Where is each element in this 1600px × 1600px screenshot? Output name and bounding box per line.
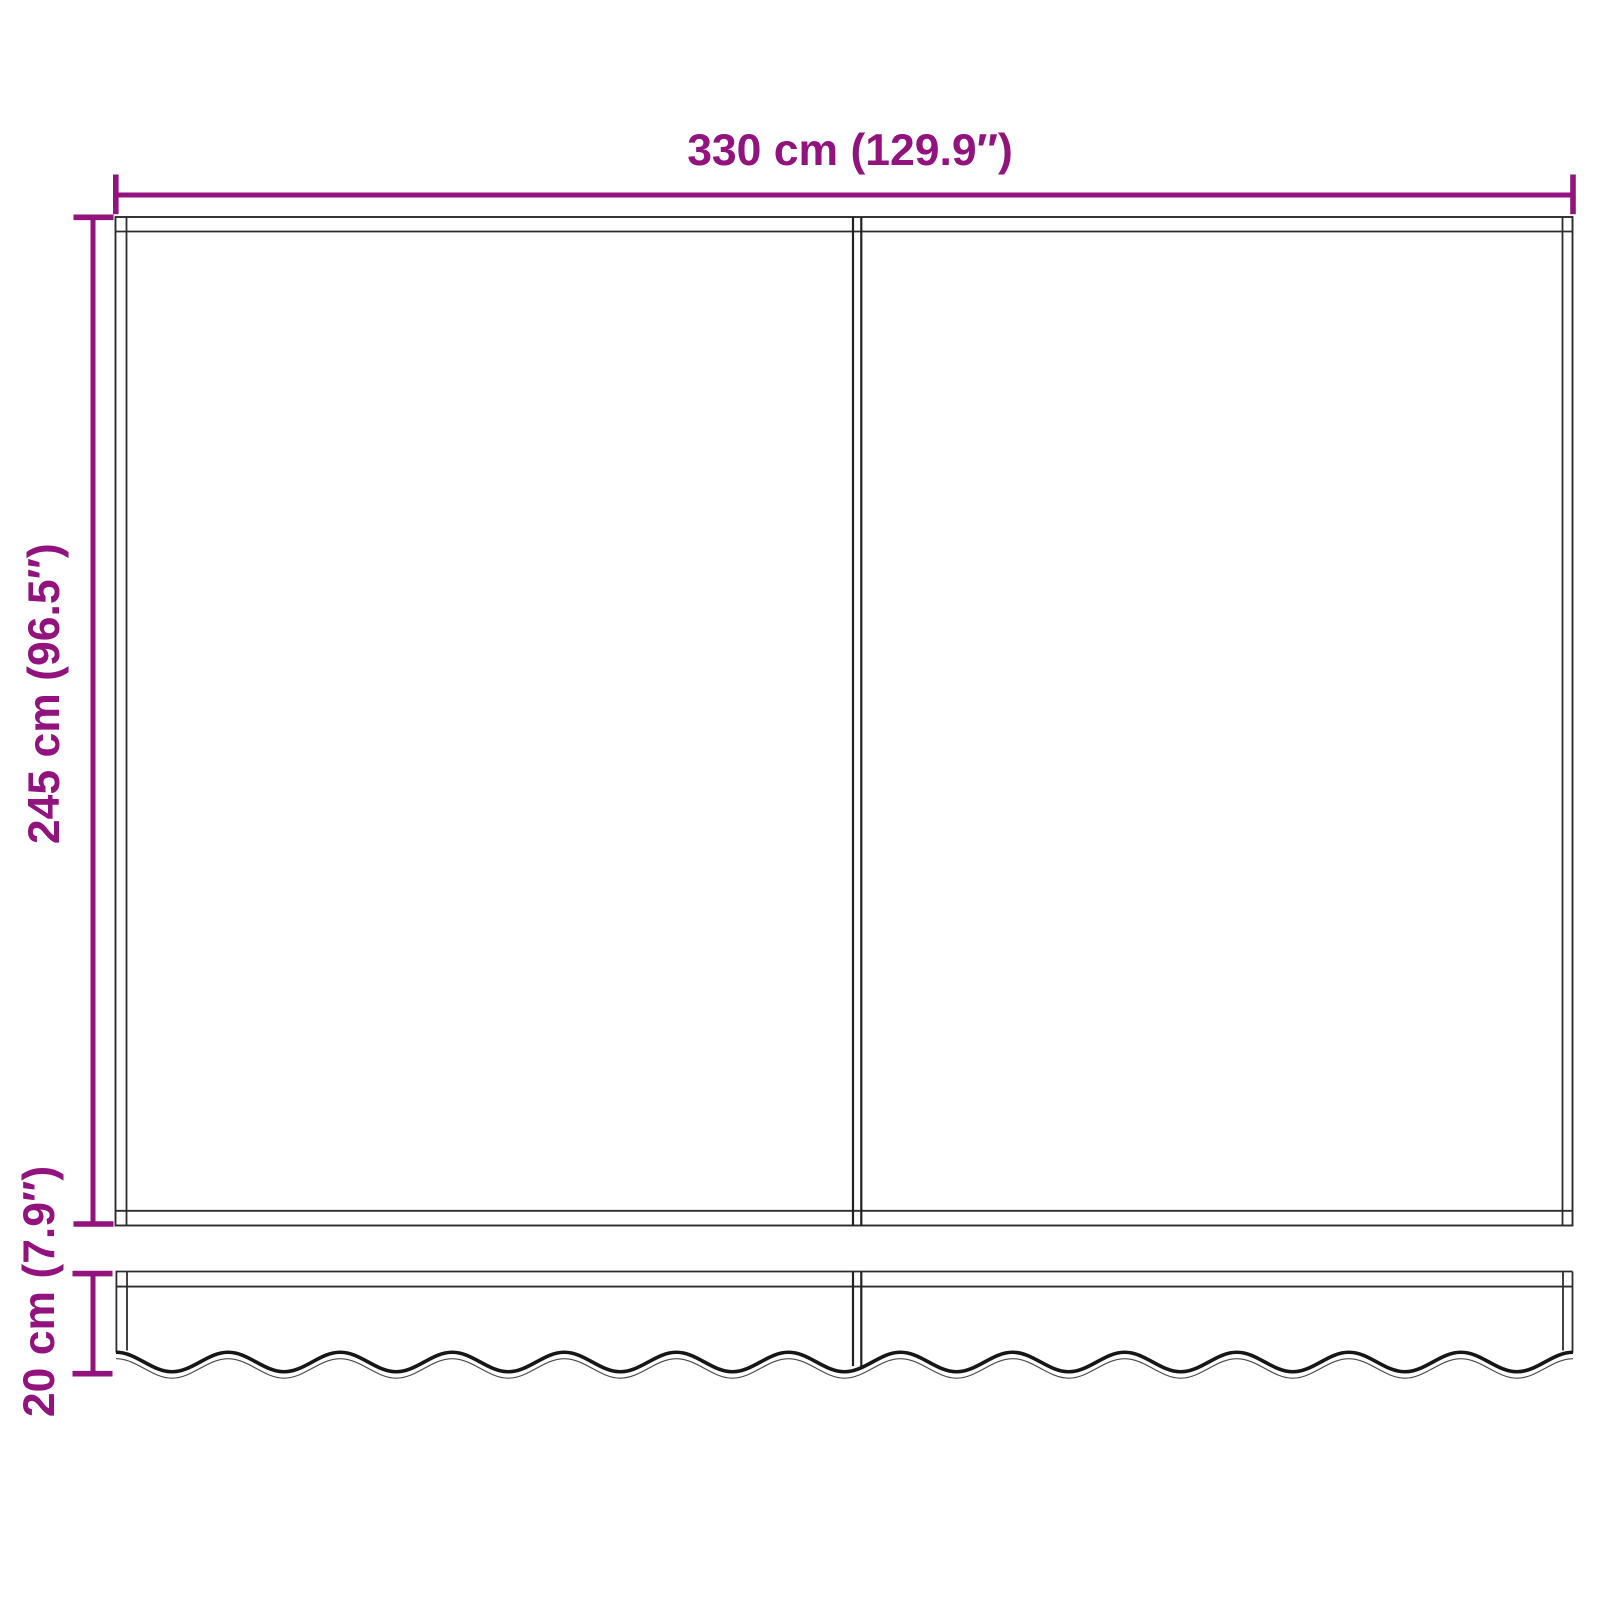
svg-text:330 cm (129.9″): 330 cm (129.9″) — [687, 126, 1013, 175]
svg-text:20 cm (7.9″): 20 cm (7.9″) — [15, 1166, 64, 1417]
svg-text:245 cm (96.5″): 245 cm (96.5″) — [20, 543, 69, 844]
